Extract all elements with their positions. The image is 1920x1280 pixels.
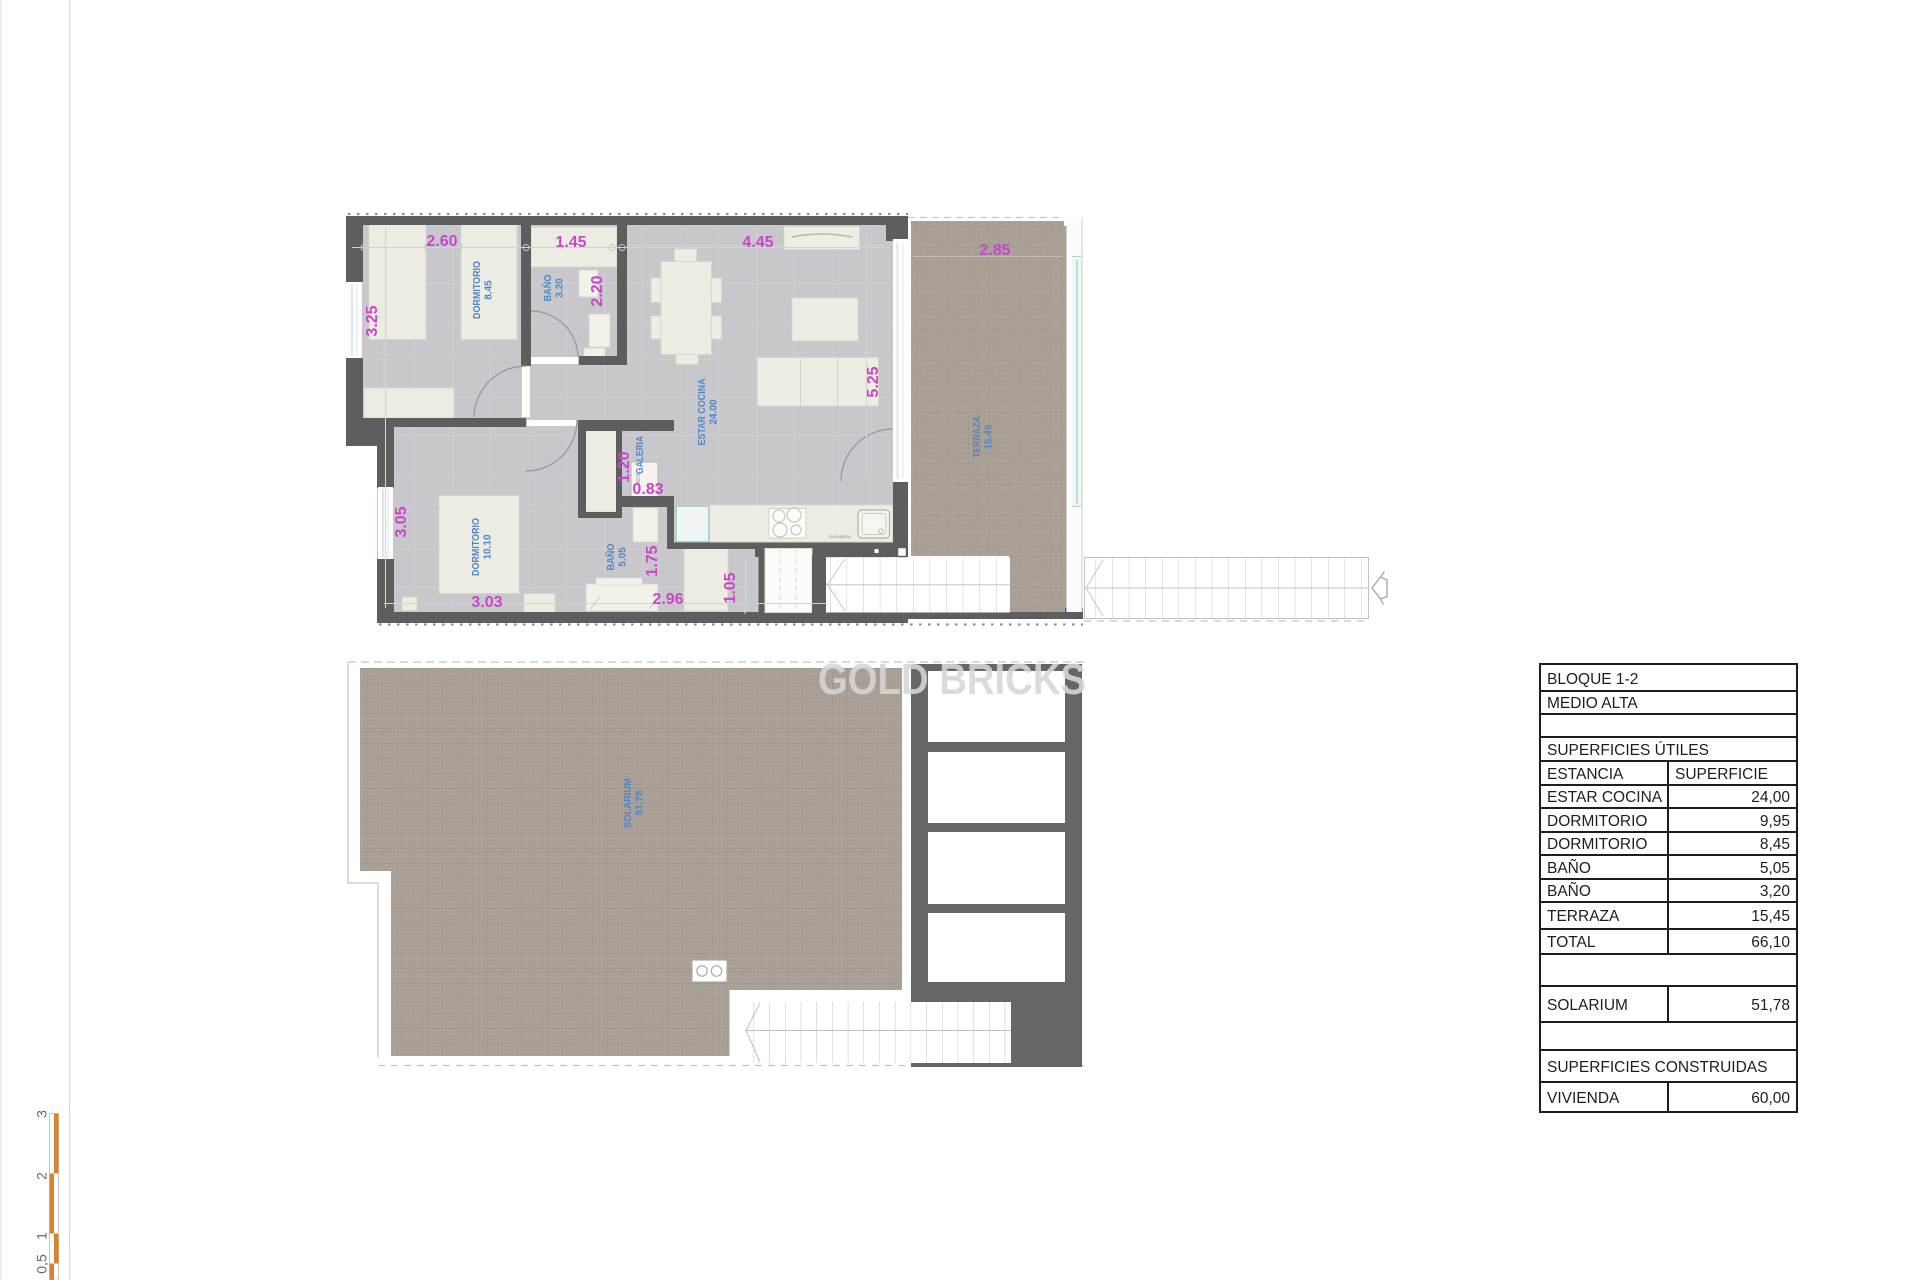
svg-text:66,10: 66,10 [1751,934,1790,951]
svg-text:9,95: 9,95 [1760,813,1790,830]
svg-text:60,00: 60,00 [1751,1090,1790,1107]
svg-text:15,45: 15,45 [1751,908,1790,925]
svg-text:1.75: 1.75 [644,545,661,576]
svg-text:2.20: 2.20 [589,275,606,306]
svg-text:BAÑO5.05: BAÑO5.05 [604,543,629,570]
svg-text:acs: acs [635,473,642,484]
svg-text:1.20: 1.20 [616,451,633,482]
svg-text:4.45: 4.45 [742,234,773,251]
svg-text:1.05: 1.05 [722,572,739,603]
svg-text:BAÑO: BAÑO [1547,883,1591,900]
svg-text:TERRAZA: TERRAZA [1547,908,1620,925]
svg-text:ESTAR COCINA: ESTAR COCINA [1547,789,1663,806]
svg-text:1.45: 1.45 [555,234,586,251]
svg-text:VIVIENDA: VIVIENDA [1547,1090,1620,1107]
svg-text:BLOQUE 1-2: BLOQUE 1-2 [1547,671,1638,688]
svg-text:3.03: 3.03 [471,594,502,611]
svg-text:2: 2 [34,1172,50,1180]
svg-text:2.85: 2.85 [979,242,1010,259]
svg-text:3.05: 3.05 [393,506,410,537]
svg-text:DORMITORIO: DORMITORIO [1547,813,1647,830]
svg-text:SUPERFICIES CONSTRUIDAS: SUPERFICIES CONSTRUIDAS [1547,1059,1767,1076]
svg-text:SOLARIUM: SOLARIUM [1547,997,1628,1014]
svg-text:0,5: 0,5 [34,1254,50,1274]
svg-text:5,05: 5,05 [1760,860,1790,877]
svg-text:3: 3 [34,1110,50,1118]
svg-text:BAÑO: BAÑO [1547,860,1591,877]
svg-text:24,00: 24,00 [1751,789,1790,806]
svg-text:TOTAL: TOTAL [1547,934,1596,951]
svg-text:8,45: 8,45 [1760,836,1790,853]
svg-text:3,20: 3,20 [1760,883,1791,900]
svg-text:GALERIA: GALERIA [635,436,646,474]
svg-text:MEDIO ALTA: MEDIO ALTA [1547,695,1638,712]
svg-text:GOLD BRICKS: GOLD BRICKS [818,655,1086,704]
svg-text:DORMITORIO: DORMITORIO [1547,836,1647,853]
svg-text:2.60: 2.60 [426,233,457,250]
svg-text:SUPERFICIES ÚTILES: SUPERFICIES ÚTILES [1547,742,1709,759]
svg-text:SUPERFICIE: SUPERFICIE [1675,766,1768,783]
svg-text:lavavajillas: lavavajillas [829,534,852,539]
svg-text:51,78: 51,78 [1751,997,1790,1014]
svg-text:BAÑO3.20: BAÑO3.20 [541,274,566,301]
svg-text:ESTANCIA: ESTANCIA [1547,766,1624,783]
svg-text:2.96: 2.96 [652,591,683,608]
svg-text:1: 1 [34,1232,50,1240]
svg-text:5.25: 5.25 [865,366,882,397]
svg-text:3.25: 3.25 [364,305,381,336]
